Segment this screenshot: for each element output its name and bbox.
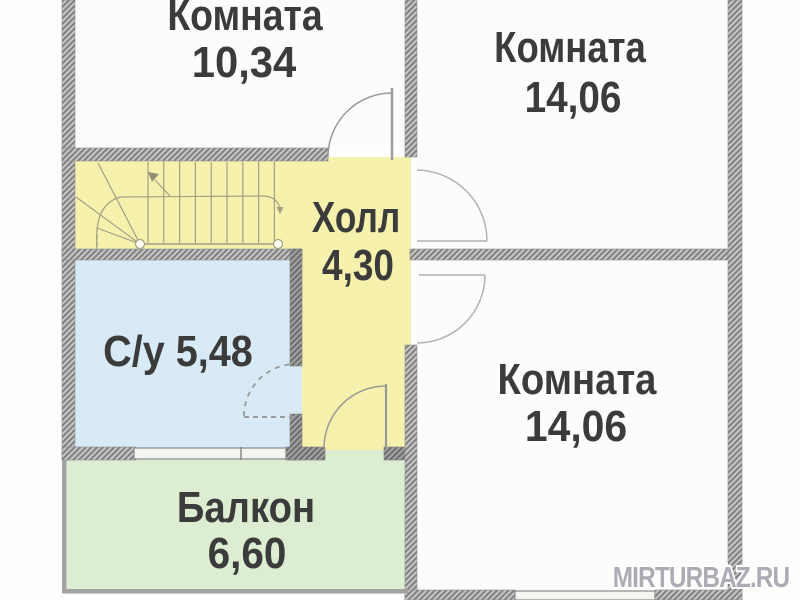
svg-text:Комната: Комната [494, 22, 646, 72]
svg-text:4,30: 4,30 [322, 240, 394, 290]
svg-text:10,34: 10,34 [192, 38, 297, 87]
svg-text:6,60: 6,60 [208, 528, 287, 577]
svg-text:Комната: Комната [498, 355, 658, 404]
svg-text:14,06: 14,06 [525, 403, 627, 452]
svg-text:Балкон: Балкон [177, 483, 315, 532]
svg-text:Комната: Комната [167, 0, 323, 40]
svg-text:14,06: 14,06 [525, 72, 622, 122]
svg-text:MIRTURBAZ.RU: MIRTURBAZ.RU [613, 561, 790, 593]
svg-text:С/у 5,48: С/у 5,48 [103, 326, 253, 375]
svg-text:Холл: Холл [312, 193, 400, 242]
